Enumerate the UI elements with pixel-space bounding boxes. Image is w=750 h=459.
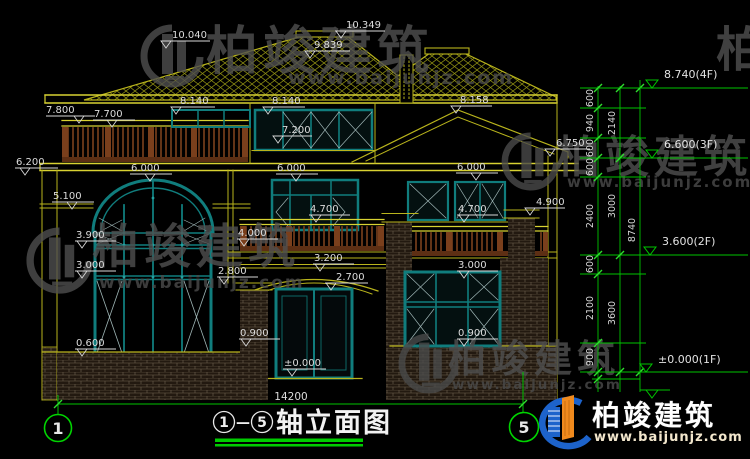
svg-text:4.700: 4.700 <box>458 204 487 215</box>
svg-text:2140: 2140 <box>607 111 618 135</box>
svg-text:3000: 3000 <box>607 194 618 218</box>
svg-text:900: 900 <box>585 348 596 366</box>
svg-text:2.800: 2.800 <box>218 266 247 277</box>
svg-text:2100: 2100 <box>585 296 596 320</box>
svg-text:6.000: 6.000 <box>131 163 160 174</box>
svg-text:7.200: 7.200 <box>282 125 311 136</box>
svg-text:3.900: 3.900 <box>76 230 105 241</box>
svg-text:5: 5 <box>518 418 529 437</box>
svg-text:2400: 2400 <box>585 204 596 228</box>
svg-text:600: 600 <box>585 139 596 157</box>
logo-building-orange <box>562 395 574 440</box>
svg-text:0.900: 0.900 <box>458 328 487 339</box>
svg-text:4.700: 4.700 <box>310 204 339 215</box>
title-separator: — <box>236 415 250 431</box>
chain-values-outer: 8740 <box>627 218 638 242</box>
svg-text:4.900: 4.900 <box>536 197 565 208</box>
svg-text:3.200: 3.200 <box>314 253 343 264</box>
svg-text:±0.000(1F): ±0.000(1F) <box>658 353 721 366</box>
svg-text:7.700: 7.700 <box>94 109 123 120</box>
svg-text:600: 600 <box>585 158 596 176</box>
svg-text:柏竣建筑: 柏竣建筑 <box>92 220 300 275</box>
svg-text:±0.000: ±0.000 <box>284 358 321 369</box>
svg-text:10.349: 10.349 <box>346 20 381 31</box>
svg-text:8.140: 8.140 <box>272 96 301 107</box>
logo-url-text: www.baijunjz.com <box>594 430 743 445</box>
svg-text:6.000: 6.000 <box>277 163 306 174</box>
watermark-top-right: 柏竣建筑 <box>716 22 750 78</box>
svg-text:3.000: 3.000 <box>458 260 487 271</box>
svg-text:8.158: 8.158 <box>460 95 489 106</box>
svg-text:600: 600 <box>585 255 596 273</box>
svg-text:10.040: 10.040 <box>172 30 207 41</box>
svg-text:1: 1 <box>52 419 63 438</box>
title-axis-to: 5 <box>257 415 267 431</box>
svg-text:940: 940 <box>585 114 596 132</box>
svg-text:6.000: 6.000 <box>457 162 486 173</box>
svg-text:8.140: 8.140 <box>180 96 209 107</box>
windows-3f-center <box>252 110 375 151</box>
title-text: 轴立面图 <box>276 407 392 439</box>
svg-text:3.000: 3.000 <box>76 260 105 271</box>
title-axis-from: 1 <box>219 415 229 431</box>
svg-text:0.600: 0.600 <box>76 338 105 349</box>
windows-2f-right <box>404 182 510 222</box>
svg-text:www.baijunjz.com: www.baijunjz.com <box>99 273 305 293</box>
svg-text:6.200: 6.200 <box>16 157 45 168</box>
svg-text:9.839: 9.839 <box>314 40 343 51</box>
watermark-url: www.baijunjz.com <box>288 67 514 89</box>
svg-text:0.900: 0.900 <box>240 328 269 339</box>
logo-brand-text: 柏竣建筑 <box>592 399 716 432</box>
svg-text:6.750: 6.750 <box>556 138 585 149</box>
svg-text:6.600(3F): 6.600(3F) <box>664 138 717 151</box>
svg-text:7.800: 7.800 <box>46 105 75 116</box>
svg-text:2.700: 2.700 <box>336 272 365 283</box>
svg-text:8740: 8740 <box>627 218 638 242</box>
svg-text:3600: 3600 <box>607 301 618 325</box>
svg-text:5.100: 5.100 <box>53 191 82 202</box>
svg-text:柏竣建筑: 柏竣建筑 <box>716 22 750 78</box>
elevation-drawing-canvas: 柏竣建筑 www.baijunjz.com 柏竣建筑 柏竣建筑 www.baij… <box>0 0 750 459</box>
total-width-value: 14200 <box>274 391 307 403</box>
title-underline-2 <box>215 444 363 447</box>
title-underline-1 <box>215 439 363 443</box>
svg-text:4.000: 4.000 <box>238 228 267 239</box>
svg-text:600: 600 <box>585 89 596 107</box>
svg-text:3.600(2F): 3.600(2F) <box>662 235 715 248</box>
svg-text:8.740(4F): 8.740(4F) <box>664 68 717 81</box>
